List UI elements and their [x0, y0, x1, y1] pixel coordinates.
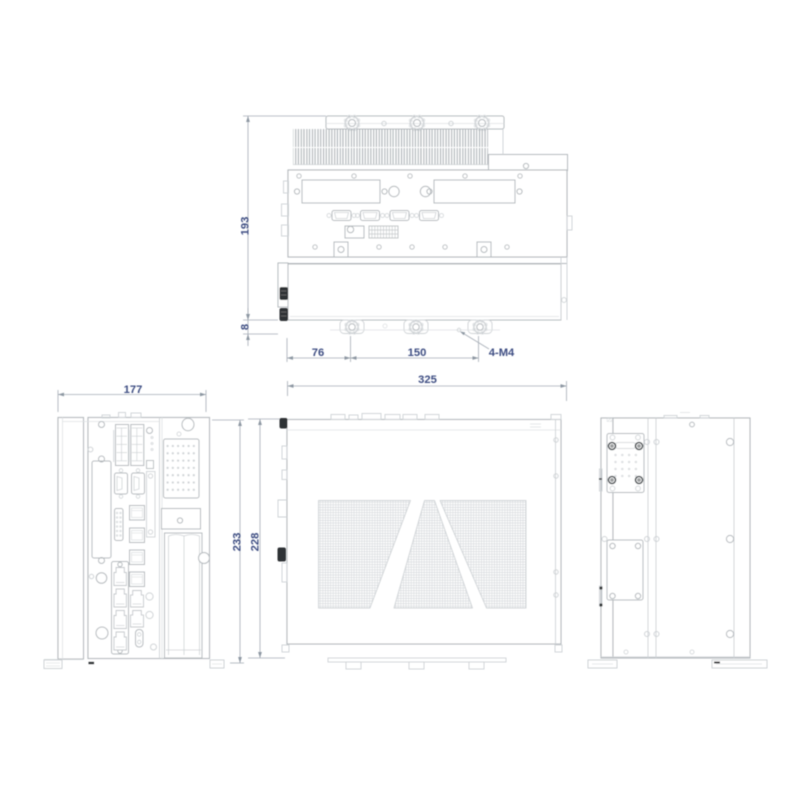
svg-text:8: 8 [240, 324, 252, 330]
svg-text:193: 193 [240, 217, 252, 236]
svg-text:150: 150 [408, 347, 427, 359]
svg-text:177: 177 [124, 384, 143, 396]
svg-text:233: 233 [232, 533, 244, 552]
svg-text:325: 325 [418, 374, 437, 386]
svg-text:76: 76 [312, 347, 324, 359]
svg-text:4-M4: 4-M4 [489, 347, 515, 359]
svg-text:228: 228 [250, 533, 262, 552]
